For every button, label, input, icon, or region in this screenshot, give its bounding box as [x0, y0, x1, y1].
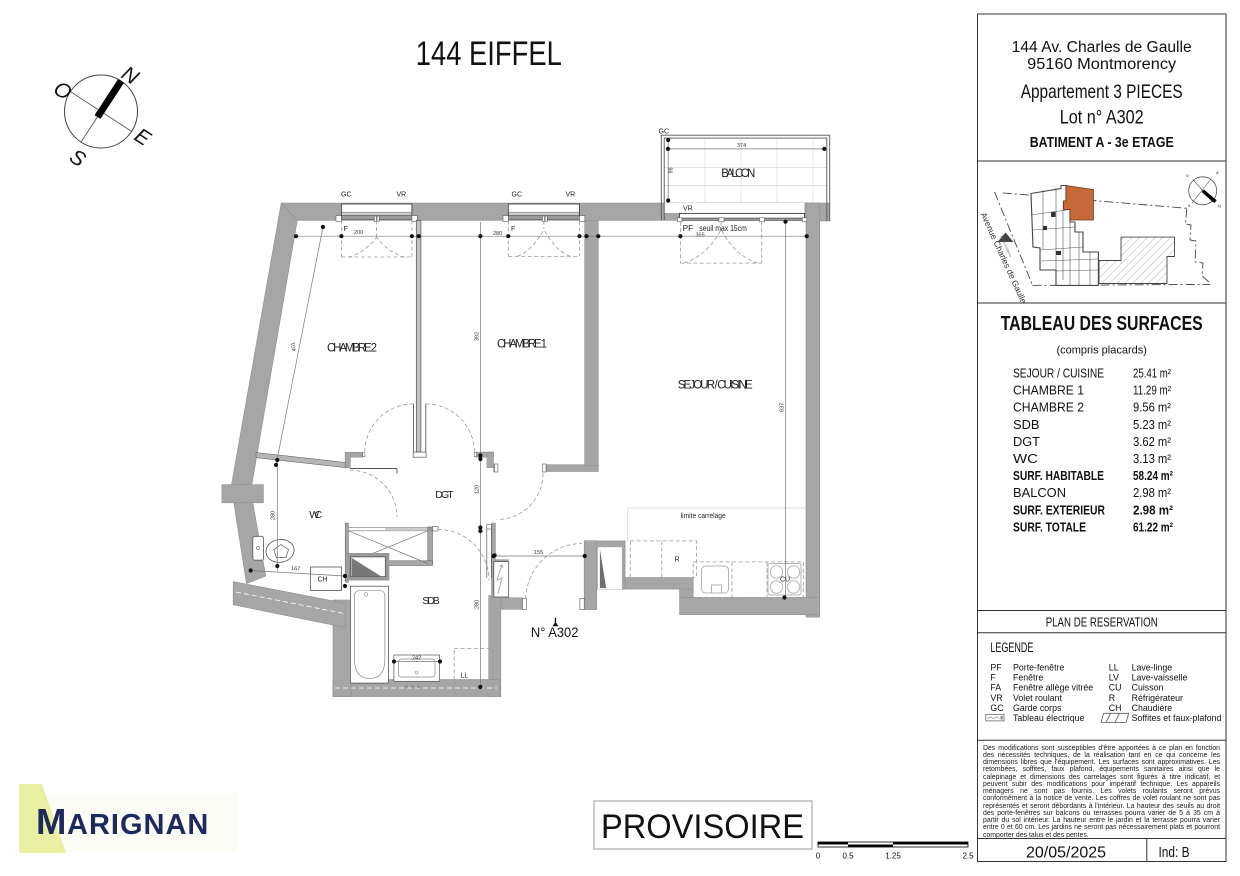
- svg-text:seuil max 15cm: seuil max 15cm: [699, 223, 747, 233]
- svg-text:CHAMBRE 2: CHAMBRE 2: [327, 343, 377, 355]
- svg-text:5.23 m²: 5.23 m²: [1133, 418, 1171, 432]
- svg-text:a: a: [1216, 170, 1219, 175]
- svg-text:R: R: [1109, 693, 1115, 703]
- svg-text:355: 355: [696, 233, 705, 239]
- svg-text:S: S: [65, 145, 89, 172]
- svg-text:CHAMBRE 1: CHAMBRE 1: [1013, 384, 1084, 398]
- svg-text:1.25: 1.25: [885, 852, 901, 861]
- svg-text:2.5: 2.5: [962, 852, 974, 861]
- svg-text:144 EIFFEL: 144 EIFFEL: [416, 35, 562, 73]
- svg-text:DGT: DGT: [435, 489, 454, 501]
- svg-text:WC: WC: [1013, 452, 1038, 466]
- svg-text:PF: PF: [990, 663, 1002, 673]
- svg-text:61.22 m²: 61.22 m²: [1133, 520, 1173, 534]
- svg-text:PF: PF: [683, 223, 694, 233]
- svg-text:200: 200: [354, 230, 363, 236]
- svg-text:CHAMBRE 1: CHAMBRE 1: [497, 339, 547, 351]
- svg-text:CH: CH: [1109, 703, 1122, 713]
- svg-text:25.41 m²: 25.41 m²: [1133, 367, 1171, 381]
- svg-text:LL: LL: [1109, 663, 1119, 673]
- svg-text:PLAN DE RESERVATION: PLAN DE RESERVATION: [1046, 615, 1158, 630]
- svg-text:FA: FA: [990, 683, 1001, 693]
- svg-text:Lave-linge: Lave-linge: [1132, 663, 1173, 673]
- svg-text:98: 98: [668, 167, 674, 173]
- svg-text:374: 374: [737, 143, 746, 149]
- svg-text:392: 392: [475, 332, 481, 341]
- svg-text:401: 401: [290, 342, 298, 352]
- svg-text:GC: GC: [659, 129, 670, 136]
- svg-text:Chaudière: Chaudière: [1132, 703, 1173, 713]
- svg-text:LEGENDE: LEGENDE: [990, 640, 1033, 655]
- svg-text:PROVISOIRE: PROVISOIRE: [601, 808, 804, 846]
- svg-text:TABLEAU DES SURFACES: TABLEAU DES SURFACES: [1001, 312, 1203, 335]
- svg-text:SURF. HABITABLE: SURF. HABITABLE: [1013, 469, 1104, 483]
- svg-text:9.56 m²: 9.56 m²: [1133, 401, 1171, 415]
- svg-text:s: s: [1188, 203, 1191, 208]
- svg-text:Tableau électrique: Tableau électrique: [1013, 713, 1085, 723]
- svg-text:O: O: [49, 77, 75, 105]
- svg-text:LV: LV: [1109, 673, 1119, 683]
- svg-text:Garde corps: Garde corps: [1013, 703, 1062, 713]
- svg-text:58.24 m²: 58.24 m²: [1133, 469, 1173, 483]
- svg-text:Fenêtre allège vitrée: Fenêtre allège vitrée: [1013, 683, 1093, 693]
- svg-text:R: R: [675, 557, 680, 564]
- svg-text:F: F: [990, 673, 996, 683]
- svg-text:2.98 m²: 2.98 m²: [1133, 486, 1171, 500]
- svg-text:DGT: DGT: [1013, 435, 1040, 449]
- svg-text:Cuisson: Cuisson: [1132, 683, 1164, 693]
- svg-text:SURF. EXTERIEUR: SURF. EXTERIEUR: [1013, 503, 1105, 517]
- svg-text:155: 155: [534, 550, 543, 556]
- svg-text:(compris placards): (compris placards): [1056, 345, 1146, 357]
- svg-text:637: 637: [780, 403, 786, 412]
- svg-text:280: 280: [475, 600, 481, 609]
- svg-text:0.5: 0.5: [842, 852, 854, 861]
- svg-text:BATIMENT A - 3e ETAGE: BATIMENT A - 3e ETAGE: [1030, 134, 1174, 151]
- svg-text:120: 120: [475, 485, 481, 494]
- svg-text:limite carrelage: limite carrelage: [681, 513, 726, 520]
- svg-text:F: F: [511, 226, 515, 233]
- svg-text:N° A302: N° A302: [531, 625, 579, 640]
- svg-text:280: 280: [271, 511, 277, 520]
- svg-text:VR: VR: [990, 693, 1002, 703]
- svg-text:VR: VR: [683, 206, 693, 213]
- svg-text:0: 0: [816, 852, 821, 861]
- svg-text:GC: GC: [990, 703, 1004, 713]
- svg-text:VR: VR: [566, 192, 576, 199]
- svg-text:Appartement 3 PIECES: Appartement 3 PIECES: [1021, 81, 1183, 103]
- svg-text:SDB: SDB: [422, 595, 440, 607]
- svg-text:Réfrigérateur: Réfrigérateur: [1132, 693, 1183, 703]
- svg-text:Lot n° A302: Lot n° A302: [1060, 107, 1144, 129]
- svg-text:Porte-fenêtre: Porte-fenêtre: [1013, 663, 1064, 673]
- svg-text:CH: CH: [318, 577, 328, 584]
- svg-text:o: o: [1186, 173, 1189, 178]
- svg-text:Fenêtre: Fenêtre: [1013, 673, 1043, 683]
- svg-text:2.98 m²: 2.98 m²: [1133, 503, 1173, 517]
- svg-text:GC: GC: [341, 192, 352, 199]
- svg-text:SEJOUR / CUISINE: SEJOUR / CUISINE: [1013, 367, 1104, 381]
- svg-text:280: 280: [493, 231, 502, 237]
- svg-text:Volet roulant: Volet roulant: [1013, 693, 1062, 703]
- svg-text:Soffites et faux-plafond: Soffites et faux-plafond: [1132, 713, 1222, 723]
- svg-text:167: 167: [291, 566, 300, 572]
- svg-text:CU: CU: [1109, 683, 1122, 693]
- svg-text:3.13 m²: 3.13 m²: [1133, 452, 1171, 466]
- svg-text:F: F: [344, 226, 348, 233]
- svg-text:Ind: B: Ind: B: [1159, 844, 1190, 861]
- svg-text:BALCON: BALCON: [721, 168, 755, 180]
- svg-text:M: M: [36, 801, 66, 842]
- svg-text:N: N: [1218, 204, 1221, 209]
- svg-text:20/05/2025: 20/05/2025: [1026, 845, 1106, 862]
- svg-text:Lave-vaisselle: Lave-vaisselle: [1132, 673, 1188, 683]
- svg-text:CU: CU: [780, 577, 790, 584]
- svg-text:BALCON: BALCON: [1013, 486, 1066, 500]
- svg-text:144 Av. Charles de Gaulle: 144 Av. Charles de Gaulle: [1012, 39, 1192, 56]
- svg-text:95160 Montmorency: 95160 Montmorency: [1027, 56, 1176, 73]
- svg-text:CHAMBRE 2: CHAMBRE 2: [1013, 401, 1084, 415]
- svg-text:242: 242: [412, 656, 421, 662]
- svg-text:11.29 m²: 11.29 m²: [1133, 384, 1171, 398]
- svg-text:SURF. TOTALE: SURF. TOTALE: [1013, 520, 1086, 534]
- svg-text:VR: VR: [397, 192, 407, 199]
- svg-text:SDB: SDB: [1013, 418, 1040, 432]
- svg-text:3.62 m²: 3.62 m²: [1133, 435, 1171, 449]
- svg-text:GC: GC: [512, 192, 523, 199]
- svg-text:SEJOUR / CUISINE: SEJOUR / CUISINE: [678, 380, 753, 392]
- svg-text:LL: LL: [461, 673, 469, 680]
- svg-text:ARIGNAN: ARIGNAN: [67, 809, 209, 841]
- svg-text:WC: WC: [309, 509, 322, 521]
